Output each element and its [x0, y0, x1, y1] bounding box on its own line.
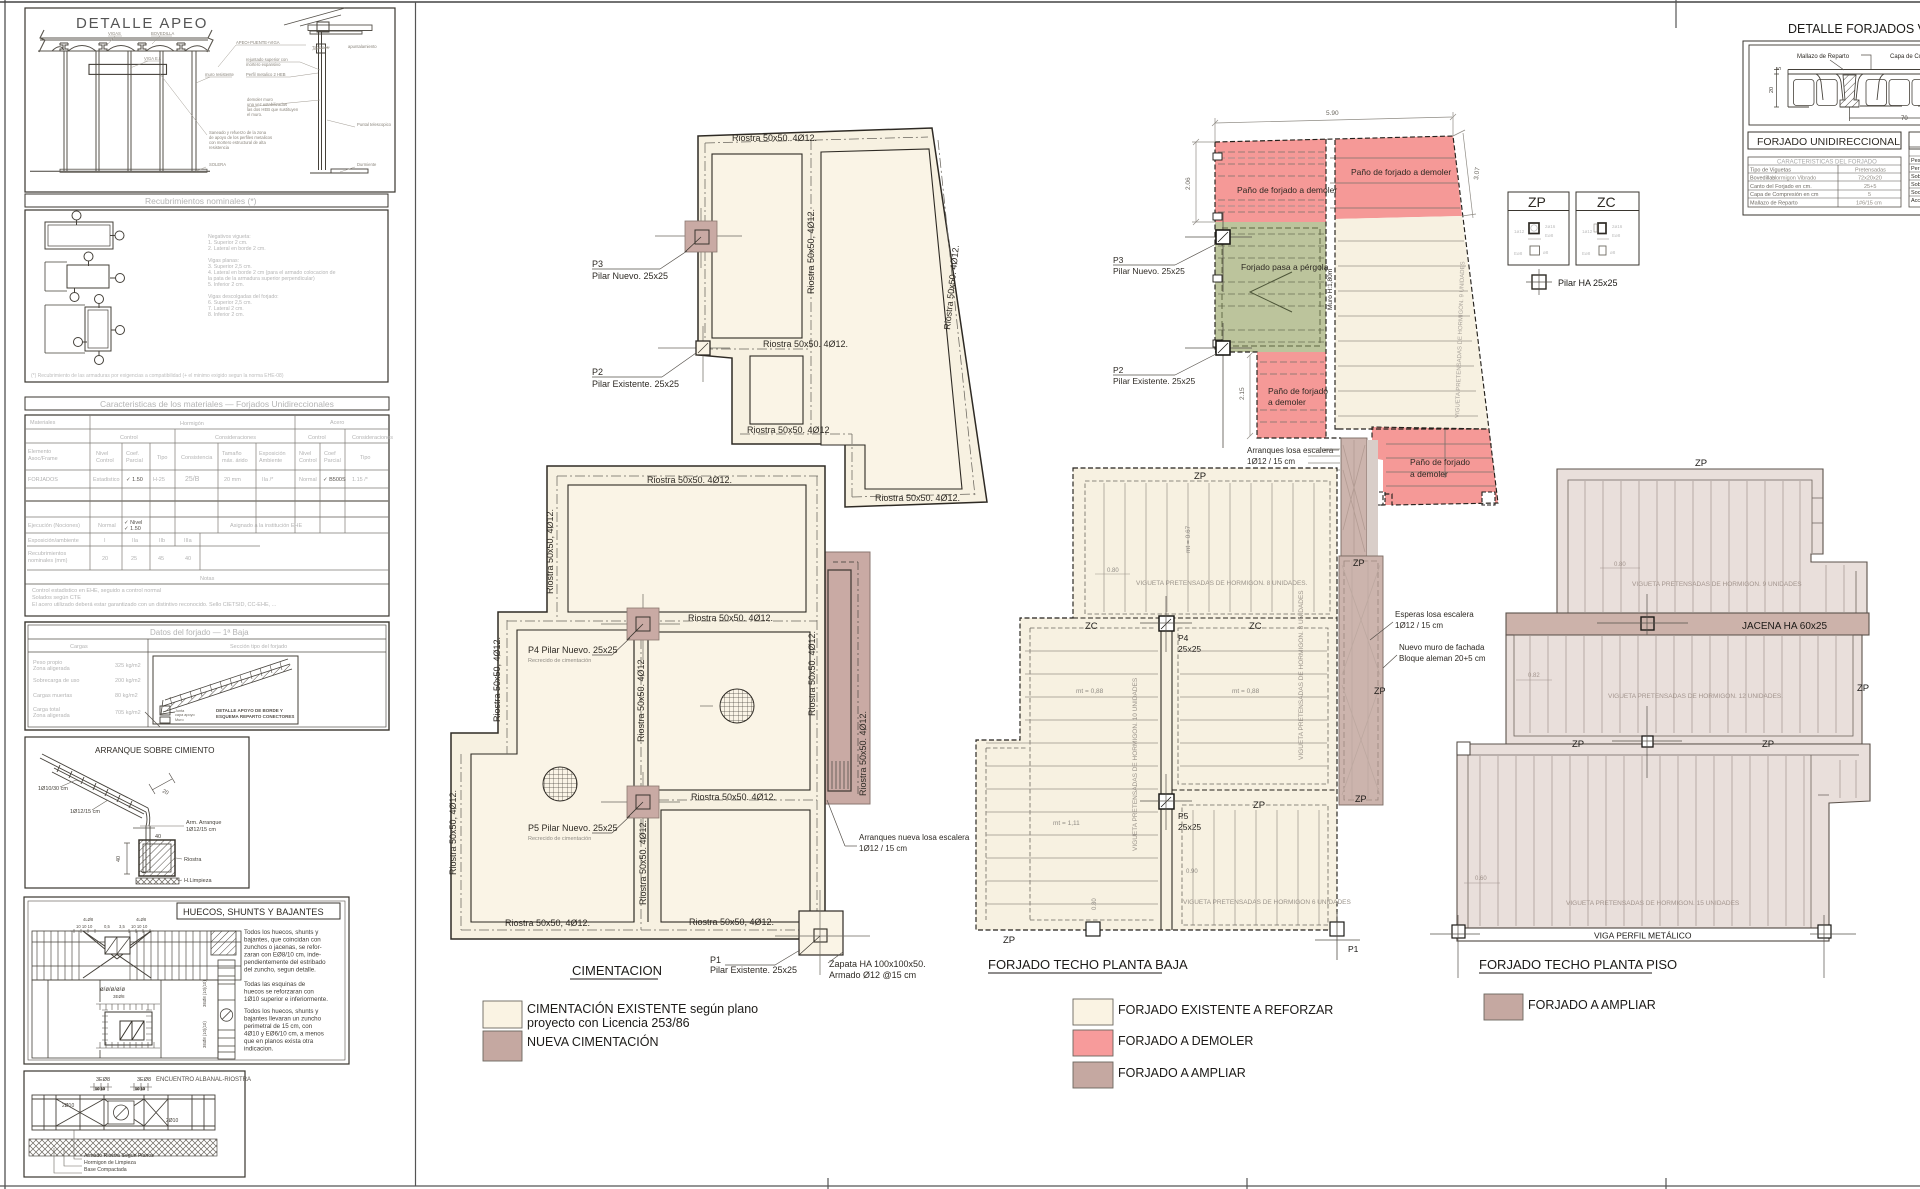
svg-text:IIa: IIa: [132, 538, 139, 544]
svg-text:Zapata HA 100x100x50.: Zapata HA 100x100x50.: [829, 959, 926, 969]
svg-text:200 kg/m2: 200 kg/m2: [115, 678, 141, 684]
svg-text:mt = 0.67: mt = 0.67: [1185, 525, 1192, 553]
svg-text:Mallazo de Reparto: Mallazo de Reparto: [1797, 54, 1850, 60]
svg-text:ZP: ZP: [1253, 800, 1265, 811]
svg-text:IIa /*: IIa /*: [262, 477, 274, 483]
svg-text:muro resistente: muro resistente: [205, 72, 235, 77]
svg-text:Estadistico: Estadistico: [93, 477, 120, 483]
svg-text:CARACTERISTICAS DEL FORJADO: CARACTERISTICAS DEL FORJADO: [1777, 160, 1877, 166]
svg-text:DETALLE APEO: DETALLE APEO: [76, 15, 208, 32]
svg-text:P2: P2: [592, 367, 603, 377]
svg-text:P4 Pilar Nuevo. 25x25: P4 Pilar Nuevo. 25x25: [528, 645, 618, 655]
svg-text:1#6/15 cm: 1#6/15 cm: [1856, 201, 1882, 207]
svg-text:0.80: 0.80: [1614, 562, 1626, 568]
svg-text:P1: P1: [710, 955, 721, 965]
svg-text:4LØ8: 4LØ8: [136, 917, 147, 922]
svg-text:ø8: ø8: [1543, 250, 1549, 255]
svg-text:80 kg/m2: 80 kg/m2: [115, 693, 138, 699]
svg-text:✓ 1.50: ✓ 1.50: [126, 477, 143, 483]
svg-text:1.15 /*: 1.15 /*: [352, 477, 369, 483]
svg-text:Elemento: Elemento: [28, 449, 51, 455]
svg-text:P4: P4: [1178, 633, 1189, 643]
svg-text:3EØ8: 3EØ8: [113, 994, 125, 999]
svg-text:Armado Ø12 @15 cm: Armado Ø12 @15 cm: [829, 970, 916, 980]
svg-text:Pilar Existente. 25x25: Pilar Existente. 25x25: [710, 965, 797, 975]
svg-text:ZC: ZC: [1085, 621, 1098, 632]
svg-text:45: 45: [158, 556, 164, 562]
svg-text:P3: P3: [592, 259, 603, 269]
svg-text:BOVEDILLA: BOVEDILLA: [151, 31, 174, 36]
svg-text:zaran con EØ8/10 cm, inde-: zaran con EØ8/10 cm, inde-: [244, 952, 321, 959]
svg-text:H.Limpieza: H.Limpieza: [184, 878, 212, 884]
svg-text:Arranques nueva losa escalera: Arranques nueva losa escalera: [859, 833, 970, 842]
svg-text:FORJADOS: FORJADOS: [28, 477, 58, 483]
svg-text:0,5: 0,5: [104, 924, 110, 929]
svg-text:Riostra 50x50. 4Ø12: Riostra 50x50. 4Ø12: [747, 425, 830, 435]
svg-text:Cargas muertas: Cargas muertas: [33, 693, 72, 699]
svg-text:IIIa: IIIa: [184, 538, 193, 544]
svg-text:3EØ8: 3EØ8: [137, 1077, 151, 1083]
svg-text:Bloque aleman 20+5 cm: Bloque aleman 20+5 cm: [1399, 654, 1486, 663]
svg-text:2.06: 2.06: [1185, 177, 1192, 190]
svg-text:Paño de forjado: Paño de forjado: [1410, 457, 1470, 467]
svg-text:VIGUETA PRETENSADAS DE HORMIGO: VIGUETA PRETENSADAS DE HORMIGON. 12 UNID…: [1608, 693, 1783, 700]
svg-text:Riostra: Riostra: [184, 857, 202, 863]
svg-text:10 10: 10 10: [135, 1086, 146, 1091]
svg-text:zunchos o jacenas, se refor-: zunchos o jacenas, se refor-: [244, 944, 322, 951]
svg-text:Riostra 50x50. 4Ø12.: Riostra 50x50. 4Ø12.: [688, 613, 773, 623]
svg-text:indicacion.: indicacion.: [244, 1046, 274, 1053]
svg-text:25/B: 25/B: [185, 476, 200, 483]
svg-text:P5: P5: [1178, 811, 1189, 821]
svg-text:Eø8: Eø8: [1612, 233, 1621, 238]
svg-text:Hormigón: Hormigón: [180, 421, 204, 427]
svg-text:a demoler: a demoler: [1410, 469, 1448, 479]
svg-text:Paño de forjado a demoler: Paño de forjado a demoler: [1351, 167, 1451, 177]
svg-text:Acc: Acc: [1911, 198, 1920, 204]
svg-text:Consistencia: Consistencia: [181, 455, 213, 461]
svg-text:NUEVA CIMENTACIÓN: NUEVA CIMENTACIÓN: [527, 1034, 659, 1049]
svg-text:Riostra 50x50. 4Ø12.: Riostra 50x50. 4Ø12.: [875, 493, 960, 503]
svg-text:705 kg/m2: 705 kg/m2: [115, 710, 141, 716]
svg-text:VIGAS: VIGAS: [108, 31, 121, 36]
svg-text:Normal: Normal: [98, 523, 116, 529]
svg-text:Pretensadas: Pretensadas: [1855, 168, 1886, 174]
svg-text:Hormigon Vibrado: Hormigon Vibrado: [1772, 176, 1816, 182]
svg-text:P2: P2: [1113, 365, 1124, 375]
svg-text:4LØ8: 4LØ8: [83, 917, 94, 922]
svg-text:FORJADO A DEMOLER: FORJADO A DEMOLER: [1118, 1034, 1253, 1048]
svg-text:ZC: ZC: [1249, 621, 1262, 632]
svg-text:Nivel: Nivel: [299, 451, 311, 457]
svg-text:0.80: 0.80: [1107, 568, 1119, 574]
svg-text:P5 Pilar Nuevo. 25x25: P5 Pilar Nuevo. 25x25: [528, 823, 618, 833]
svg-text:Pilar Existente. 25x25: Pilar Existente. 25x25: [1113, 376, 1195, 386]
svg-text:ZP: ZP: [1528, 194, 1546, 210]
svg-text:Pilar Nuevo. 25x25: Pilar Nuevo. 25x25: [1113, 266, 1185, 276]
svg-text:20 mm: 20 mm: [224, 477, 241, 483]
svg-text:FORJADO A AMPLIAR: FORJADO A AMPLIAR: [1118, 1066, 1246, 1080]
svg-text:Esperas losa escalera: Esperas losa escalera: [1395, 610, 1474, 619]
svg-text:bajantes llevaran un zuncho: bajantes llevaran un zuncho: [244, 1016, 322, 1023]
svg-text:3EØ8 (10)(10): 3EØ8 (10)(10): [202, 980, 207, 1007]
svg-text:1Ø12 / 15 cm: 1Ø12 / 15 cm: [1395, 621, 1443, 630]
svg-text:Paño de forjado: Paño de forjado: [1268, 386, 1328, 396]
svg-text:2Ø10: 2Ø10: [62, 1103, 74, 1109]
svg-text:huecos se reforzaran con: huecos se reforzaran con: [244, 989, 314, 996]
svg-text:Muro: Muro: [175, 718, 184, 722]
svg-text:ZP: ZP: [1355, 794, 1367, 804]
svg-text:VIGUETA PRETENSADAS DE HORMIGO: VIGUETA PRETENSADAS DE HORMIGON. 8 UNIDA…: [1298, 590, 1305, 760]
svg-text:1Ø10 superior e inferiormente.: 1Ø10 superior e inferiormente.: [244, 996, 328, 1003]
svg-text:apuntalamiento: apuntalamiento: [348, 44, 377, 49]
svg-text:bajantes, que coincidan con: bajantes, que coincidan con: [244, 937, 321, 944]
svg-text:Nuevo muro de fachada: Nuevo muro de fachada: [1399, 643, 1485, 652]
svg-text:el muro.: el muro.: [247, 112, 262, 117]
svg-text:Acero: Acero: [330, 420, 344, 426]
svg-text:25x25: 25x25: [1178, 822, 1201, 832]
svg-text:Riostra 50x50. 4Ø12.: Riostra 50x50. 4Ø12.: [807, 631, 817, 716]
svg-text:Cargas: Cargas: [70, 644, 88, 650]
svg-text:3EØ8 (10)(10): 3EØ8 (10)(10): [202, 1021, 207, 1048]
svg-text:Asoc/Frame: Asoc/Frame: [28, 456, 58, 462]
svg-text:Armado Riostra Segun Planos: Armado Riostra Segun Planos: [84, 1153, 154, 1159]
svg-text:70: 70: [1901, 116, 1908, 122]
svg-text:Arm. Arranque: Arm. Arranque: [186, 820, 221, 826]
svg-text:40: 40: [116, 856, 122, 862]
svg-text:Tipo: Tipo: [157, 455, 168, 461]
svg-text:1Ø10/30 cm: 1Ø10/30 cm: [38, 786, 68, 792]
svg-text:CIMENTACIÓN EXISTENTE según pl: CIMENTACIÓN EXISTENTE según plano: [527, 1001, 758, 1016]
svg-text:10 10 10: 10 10 10: [131, 924, 148, 929]
svg-text:1Ø12/15 cm: 1Ø12/15 cm: [70, 809, 100, 815]
svg-text:ZP: ZP: [1194, 471, 1206, 482]
svg-text:mt = 0,88: mt = 0,88: [1232, 688, 1260, 695]
svg-text:8. Inferior 2 cm.: 8. Inferior 2 cm.: [208, 312, 244, 318]
svg-text:ZP: ZP: [1762, 739, 1774, 750]
svg-text:✓ 1.50: ✓ 1.50: [124, 526, 141, 532]
svg-text:Exposición/ambiente: Exposición/ambiente: [28, 538, 79, 544]
svg-text:Capa de Co: Capa de Co: [1890, 54, 1920, 60]
svg-text:VIGUETA PRETENSADAS DE HORMIGO: VIGUETA PRETENSADAS DE HORMIGON 6 UNIDAD…: [1183, 899, 1351, 906]
svg-text:0.60: 0.60: [1475, 876, 1487, 882]
svg-text:Riostra 50x50. 4Ø12.: Riostra 50x50. 4Ø12.: [732, 133, 817, 143]
svg-text:mortero expansivo: mortero expansivo: [246, 62, 281, 67]
svg-text:Riostra 50x50. 4Ø12.: Riostra 50x50. 4Ø12.: [638, 820, 648, 905]
svg-text:Coef.: Coef.: [126, 451, 140, 457]
svg-text:ZP: ZP: [1003, 935, 1015, 946]
svg-text:H-25: H-25: [153, 477, 165, 483]
svg-text:JACENA HA 60x25: JACENA HA 60x25: [1742, 621, 1827, 632]
svg-text:máx. árido: máx. árido: [222, 458, 248, 464]
svg-text:perimetral de 15 cm, con: perimetral de 15 cm, con: [244, 1023, 313, 1030]
svg-text:P3: P3: [1113, 255, 1124, 265]
svg-text:nominales (mm): nominales (mm): [28, 558, 68, 564]
svg-text:Asignado a la institución EHE: Asignado a la institución EHE: [230, 523, 302, 529]
svg-text:Eø8: Eø8: [1582, 251, 1591, 256]
svg-text:2. Lateral en borde 2 cm.: 2. Lateral en borde 2 cm.: [208, 246, 266, 252]
svg-text:Riostra 50x50, 4Ø12.: Riostra 50x50, 4Ø12.: [689, 917, 774, 927]
svg-text:10 10 10: 10 10 10: [76, 924, 93, 929]
svg-text:Tamaño: Tamaño: [222, 451, 242, 457]
svg-text:Riostra 50x50, 4Ø12.: Riostra 50x50, 4Ø12.: [448, 790, 458, 875]
svg-text:Todos los huecos, shunts y: Todos los huecos, shunts y: [244, 1008, 319, 1015]
svg-text:FORJADO EXISTENTE A REFORZAR: FORJADO EXISTENTE A REFORZAR: [1118, 1003, 1333, 1017]
svg-text:Perfil metalico 2 HEB: Perfil metalico 2 HEB: [246, 72, 286, 77]
svg-text:Pes: Pes: [1911, 158, 1920, 164]
svg-text:Recubrimientos nominales (*): Recubrimientos nominales (*): [145, 196, 257, 206]
svg-text:4Ø10 y EØ6/10 cm, a menos: 4Ø10 y EØ6/10 cm, a menos: [244, 1031, 324, 1038]
svg-text:Durmiente: Durmiente: [357, 162, 377, 167]
svg-text:que en planos exista otra: que en planos exista otra: [244, 1038, 314, 1045]
svg-text:Todas las esquinas de: Todas las esquinas de: [244, 981, 306, 988]
svg-text:Zona aligerada: Zona aligerada: [33, 713, 71, 719]
svg-text:Mallazo de Reparto: Mallazo de Reparto: [1750, 201, 1798, 207]
svg-text:SOLERA: SOLERA: [209, 162, 226, 167]
svg-text:✓ B500S: ✓ B500S: [323, 477, 346, 483]
svg-text:Ejecución (Nociones): Ejecución (Nociones): [28, 523, 80, 529]
svg-text:325 kg/m2: 325 kg/m2: [115, 663, 141, 669]
svg-text:0.80: 0.80: [1092, 898, 1098, 910]
svg-text:Puntal telescopico: Puntal telescopico: [357, 122, 392, 127]
svg-text:0.90: 0.90: [1186, 869, 1198, 875]
svg-text:(*) Recubrimiento de las armad: (*) Recubrimiento de las armaduras por e…: [31, 373, 284, 379]
svg-text:ZP: ZP: [1353, 558, 1365, 568]
svg-text:FORJADO TECHO PLANTA BAJA: FORJADO TECHO PLANTA BAJA: [988, 957, 1188, 972]
svg-text:5. Inferior 2 cm.: 5. Inferior 2 cm.: [208, 282, 244, 288]
svg-text:Recrecido de cimentación: Recrecido de cimentación: [528, 836, 591, 842]
svg-text:VIGA E.I.: VIGA E.I.: [144, 56, 161, 61]
svg-text:2ø16: 2ø16: [1612, 224, 1623, 229]
svg-text:Todos los huecos, shunts y: Todos los huecos, shunts y: [244, 929, 319, 936]
svg-text:ENCUENTRO ALBANAL-RIOSTRA: ENCUENTRO ALBANAL-RIOSTRA: [156, 1077, 251, 1083]
svg-text:VIGUETA PRETENSADAS DE HORMIGO: VIGUETA PRETENSADAS DE HORMIGON. 8 UNIDA…: [1136, 580, 1308, 587]
svg-text:25x25: 25x25: [1178, 644, 1201, 654]
svg-text:2Ø10: 2Ø10: [166, 1118, 178, 1124]
svg-text:1Ø12 / 15 cm: 1Ø12 / 15 cm: [1247, 457, 1295, 466]
svg-text:1ø12: 1ø12: [1582, 229, 1593, 234]
svg-text:Canto del Forjado en cm.: Canto del Forjado en cm.: [1750, 184, 1812, 190]
svg-text:3EØ8: 3EØ8: [96, 1077, 110, 1083]
svg-text:Pilar Existente. 25x25: Pilar Existente. 25x25: [592, 379, 679, 389]
svg-text:40: 40: [155, 834, 161, 840]
svg-text:Base Compactada: Base Compactada: [84, 1167, 127, 1173]
svg-text:Control: Control: [120, 435, 138, 441]
svg-text:ø8: ø8: [1610, 250, 1616, 255]
svg-text:proyecto con Licencia 253/86: proyecto con Licencia 253/86: [527, 1016, 690, 1030]
svg-text:5.90: 5.90: [1326, 110, 1339, 117]
svg-text:Riostra 50x50. 4Ø12.: Riostra 50x50. 4Ø12.: [763, 339, 848, 349]
svg-text:ZP: ZP: [1695, 458, 1707, 469]
svg-text:ARRANQUE SOBRE CIMIENTO: ARRANQUE SOBRE CIMIENTO: [95, 746, 215, 755]
svg-text:Per: Per: [1911, 166, 1920, 172]
svg-text:Forjado pasa a pérgola: Forjado pasa a pérgola: [1241, 262, 1329, 272]
svg-text:ZP: ZP: [1374, 686, 1386, 696]
svg-text:25: 25: [131, 556, 137, 562]
svg-text:5: 5: [1868, 192, 1871, 198]
svg-text:Riostra 50x50. 4Ø12.: Riostra 50x50. 4Ø12.: [691, 792, 776, 802]
svg-text:mt = 1,11: mt = 1,11: [1053, 820, 1080, 827]
svg-text:Normal: Normal: [299, 477, 317, 483]
svg-text:capa apoyo: capa apoyo: [175, 713, 195, 717]
svg-text:3,5: 3,5: [119, 924, 125, 929]
svg-text:Tipo: Tipo: [360, 455, 371, 461]
svg-text:Caracteristicas de los materia: Caracteristicas de los materiales — Forj…: [100, 399, 334, 409]
svg-text:FORJADO A AMPLIAR: FORJADO A AMPLIAR: [1528, 998, 1656, 1012]
svg-text:Tipo de Viguetas: Tipo de Viguetas: [1750, 168, 1791, 174]
svg-text:20: 20: [1769, 87, 1775, 93]
svg-text:Zona aligerada: Zona aligerada: [33, 666, 71, 672]
svg-text:Recubrimientos: Recubrimientos: [28, 551, 66, 557]
svg-text:pendientemente del estribado: pendientemente del estribado: [244, 959, 326, 966]
svg-text:2.15: 2.15: [1239, 387, 1246, 400]
svg-text:P1: P1: [1348, 944, 1359, 954]
svg-text:a demoler: a demoler: [1268, 397, 1306, 407]
svg-text:El acero utilizado deberá esta: El acero utilizado deberá estar garantiz…: [32, 602, 277, 608]
svg-text:ZP: ZP: [1572, 739, 1584, 750]
svg-text:del zuncho, segun detalle.: del zuncho, segun detalle.: [244, 967, 316, 974]
svg-text:Riostra 50x50, 4Ø12.: Riostra 50x50, 4Ø12.: [492, 637, 502, 722]
svg-text:Capa de Compresión en cm: Capa de Compresión en cm: [1750, 192, 1819, 198]
svg-text:Riostra 50x50. 4Ø12.: Riostra 50x50. 4Ø12.: [858, 711, 868, 796]
svg-text:Sección tipo del forjado: Sección tipo del forjado: [230, 644, 287, 650]
svg-text:Pilar HA 25x25: Pilar HA 25x25: [1558, 278, 1618, 288]
svg-text:DETALLE APOYO DE BORDE Y: DETALLE APOYO DE BORDE Y: [216, 708, 283, 713]
svg-text:Parcial: Parcial: [126, 458, 143, 464]
svg-text:25+5: 25+5: [1864, 184, 1876, 190]
svg-text:5: 5: [1777, 67, 1783, 70]
svg-text:FORJADO UNIDIRECCIONAL: FORJADO UNIDIRECCIONAL: [1757, 136, 1900, 148]
svg-text:1Ø12/15 cm: 1Ø12/15 cm: [186, 827, 216, 833]
svg-text:HUECOS, SHUNTS Y BAJANTES: HUECOS, SHUNTS Y BAJANTES: [183, 907, 324, 917]
svg-text:Hormigon de Limpieza: Hormigon de Limpieza: [84, 1160, 136, 1166]
svg-text:40: 40: [185, 556, 191, 562]
svg-text:Notas: Notas: [200, 576, 215, 582]
svg-text:Datos del forjado — 1ª Baja: Datos del forjado — 1ª Baja: [150, 628, 249, 637]
svg-text:Muro H:1,80m: Muro H:1,80m: [1327, 269, 1334, 310]
svg-text:Sob: Sob: [1911, 182, 1920, 188]
svg-text:Consideraciones: Consideraciones: [352, 435, 393, 441]
svg-text:FORJADO TECHO PLANTA PISO: FORJADO TECHO PLANTA PISO: [1479, 957, 1677, 972]
svg-text:VIGUETA PRETENSADAS DE HORMIGO: VIGUETA PRETENSADAS DE HORMIGON. 10 UNID…: [1132, 677, 1139, 851]
svg-text:resistencia: resistencia: [209, 145, 230, 150]
svg-text:ESQUEMA REPARTO CONECTORES: ESQUEMA REPARTO CONECTORES: [216, 714, 294, 719]
svg-text:ZP: ZP: [1857, 683, 1869, 694]
svg-text:Sob: Sob: [1911, 174, 1920, 180]
svg-text:Riostra 50x50. 4Ø12: Riostra 50x50. 4Ø12: [636, 659, 646, 742]
svg-text:Sobrecarga de uso: Sobrecarga de uso: [33, 678, 79, 684]
svg-text:1ø12: 1ø12: [1514, 229, 1525, 234]
svg-text:CIMENTACION: CIMENTACION: [572, 963, 662, 978]
svg-text:Control estadistico en EHE, se: Control estadistico en EHE, seguido a co…: [32, 588, 161, 594]
svg-text:VIGA PERFIL METÁLICO: VIGA PERFIL METÁLICO: [1594, 931, 1692, 941]
svg-text:Soc: Soc: [1911, 190, 1920, 196]
svg-text:Solados según CTE: Solados según CTE: [32, 595, 81, 601]
svg-text:Control: Control: [96, 458, 114, 464]
svg-text:Pilar Nuevo. 25x25: Pilar Nuevo. 25x25: [592, 271, 668, 281]
svg-text:Consideraciones: Consideraciones: [215, 435, 256, 441]
svg-text:Riostra 50x50. 4Ø12.: Riostra 50x50. 4Ø12.: [647, 475, 732, 485]
svg-text:2ø16: 2ø16: [1545, 224, 1556, 229]
svg-text:ZC: ZC: [1597, 194, 1616, 210]
svg-text:1Ø12 / 15 cm: 1Ø12 / 15 cm: [859, 844, 907, 853]
svg-text:Coef: Coef: [324, 451, 336, 457]
svg-text:Eø8: Eø8: [1514, 251, 1523, 256]
svg-text:VIGUETA PRETENSADAS DE HORMIGO: VIGUETA PRETENSADAS DE HORMIGON. 15 UNID…: [1566, 900, 1740, 907]
svg-text:Ambiente: Ambiente: [259, 458, 282, 464]
svg-text:Control: Control: [299, 458, 317, 464]
svg-text:72x20x20: 72x20x20: [1858, 176, 1882, 182]
svg-text:Recrecido de cimentación: Recrecido de cimentación: [528, 658, 591, 664]
svg-text:APEO+PUENTE+VIGA: APEO+PUENTE+VIGA: [236, 40, 280, 45]
svg-text:Parcial: Parcial: [324, 458, 341, 464]
svg-text:20: 20: [102, 556, 108, 562]
svg-text:Riostra 50x50, 4Ø12.: Riostra 50x50, 4Ø12.: [505, 918, 590, 928]
svg-text:0.82: 0.82: [1528, 673, 1540, 679]
svg-text:Eø8: Eø8: [1545, 233, 1554, 238]
svg-text:mt = 0,88: mt = 0,88: [1076, 688, 1104, 695]
svg-text:Riostra 50x50, 4Ø12.: Riostra 50x50, 4Ø12.: [806, 209, 816, 294]
svg-text:Materiales: Materiales: [30, 420, 56, 426]
svg-text:IIb: IIb: [159, 538, 165, 544]
svg-text:Exposición: Exposición: [259, 451, 286, 457]
svg-text:Arranques losa escalera: Arranques losa escalera: [1247, 446, 1334, 455]
svg-text:Nivel: Nivel: [96, 451, 108, 457]
svg-text:VIGUETA PRETENSADAS DE HORMIGO: VIGUETA PRETENSADAS DE HORMIGON. 9 UNIDA…: [1632, 581, 1802, 588]
svg-text:Control: Control: [308, 435, 326, 441]
svg-text:Riostra 50x50, 4Ø12.: Riostra 50x50, 4Ø12.: [545, 509, 555, 594]
svg-text:10 10: 10 10: [95, 1086, 106, 1091]
svg-text:DETALLE FORJADOS VIGUETAS: DETALLE FORJADOS VIGUETAS: [1788, 22, 1920, 36]
svg-text:Paño de forjado a demoler: Paño de forjado a demoler: [1237, 185, 1337, 195]
svg-text:ø/ø/ø/ø/ø: ø/ø/ø/ø/ø: [100, 987, 125, 993]
